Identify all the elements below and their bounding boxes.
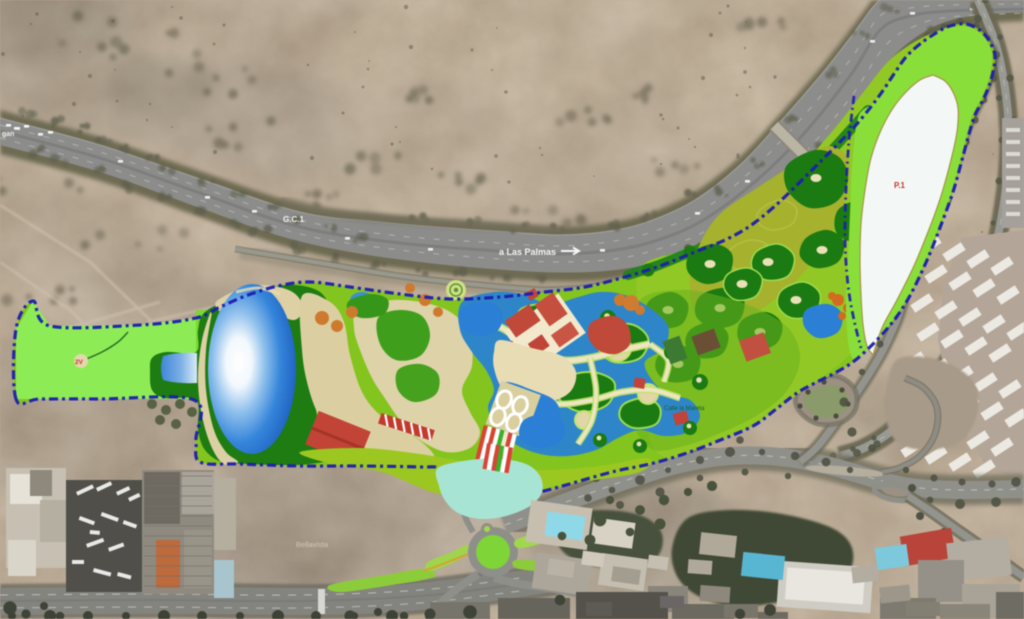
svg-text:gan: gan [2,131,14,138]
svg-text:Calle la Mareta: Calle la Mareta [664,406,705,412]
svg-text:a Las Palmas: a Las Palmas [499,247,556,257]
svg-text:2V: 2V [75,359,84,366]
svg-text:P.1: P.1 [894,181,906,190]
svg-text:Bellavista: Bellavista [296,540,329,549]
svg-text:G.C.1: G.C.1 [283,215,304,224]
